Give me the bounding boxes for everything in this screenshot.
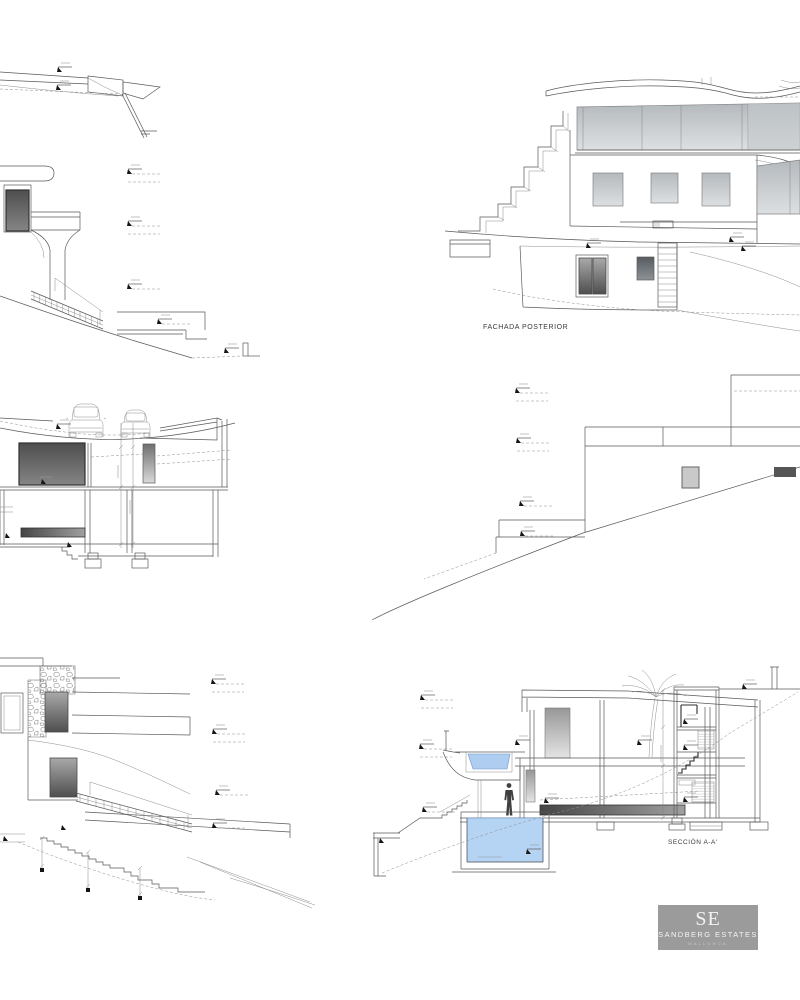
dark-counter [540, 805, 685, 815]
level-marker [127, 280, 160, 289]
drawing-entry-elevation-fragment [0, 55, 260, 370]
logo-company-name: SANDBERG ESTATES [658, 930, 758, 939]
level-marker [127, 217, 160, 234]
drawing-garage-section [0, 385, 240, 575]
dark-room [19, 443, 85, 485]
level-marker [729, 233, 744, 242]
dark-band [21, 528, 85, 537]
main-pool [452, 812, 556, 872]
window [702, 173, 730, 206]
level-marker [515, 736, 530, 745]
caption-fachada-posterior: FACHADA POSTERIOR [483, 324, 568, 331]
glass-curtain-wall [575, 103, 800, 153]
level-marker [515, 384, 548, 401]
drawing-fachada-posterior [440, 60, 800, 345]
level-marker [127, 165, 160, 182]
roof-blade [140, 418, 217, 440]
glass-section-band [143, 444, 155, 483]
small-stairs [62, 547, 78, 559]
level-marker [516, 434, 549, 451]
level-marker [519, 497, 552, 506]
upper-terrace-right [719, 667, 800, 689]
car-icon [121, 410, 150, 437]
lower-level [445, 231, 800, 331]
upper-floor [530, 700, 760, 822]
human-figure [507, 783, 512, 788]
footing [85, 553, 148, 568]
pool-water [467, 818, 543, 862]
dark-doorway [6, 190, 29, 231]
deck-line [0, 423, 235, 439]
level-marker [157, 315, 190, 324]
stone-cladding [28, 680, 46, 737]
dark-opening [774, 467, 796, 477]
dark-window [45, 692, 68, 732]
palm-tree-icon [622, 670, 686, 757]
pool-water [468, 754, 510, 769]
level-marker [224, 344, 239, 353]
sandberg-estates-logo: SE SANDBERG ESTATES MALLORCA [658, 905, 758, 950]
level-marker [683, 741, 698, 750]
drawing-lateral-elevation-stairs [0, 650, 320, 920]
level-marker [419, 740, 452, 757]
level-marker [520, 527, 553, 536]
window [651, 173, 678, 203]
terrain-dashed [382, 692, 798, 873]
level-marker [420, 691, 453, 708]
level-marker [57, 63, 72, 72]
level-marker [56, 420, 71, 429]
level-marker [544, 794, 559, 803]
glass-panel [545, 708, 570, 758]
terrain-line [0, 296, 192, 358]
staircase [31, 278, 103, 329]
curved-roof [546, 77, 800, 98]
drawing-seccion-aa [370, 655, 800, 895]
drawing-side-elevation [370, 370, 800, 630]
level-marker [211, 675, 244, 692]
drawing-sheet: FACHADA POSTERIOR SECCIÓN A-A' SE SANDBE… [0, 0, 800, 1000]
terrain-slope [372, 467, 800, 620]
deck-band [85, 812, 290, 838]
level-marker [422, 803, 455, 812]
terraced-steps [40, 838, 205, 892]
logo-subtitle: MALLORCA [688, 941, 728, 946]
level-marker [212, 725, 245, 742]
small-window [682, 467, 699, 488]
logo-initials: SE [695, 910, 720, 928]
caption-seccion-aa: SECCIÓN A-A' [668, 839, 718, 846]
white-window [1, 693, 23, 733]
dark-window [637, 257, 654, 280]
lower-floor [460, 766, 760, 822]
level-marker [742, 680, 757, 689]
grand-staircase [76, 782, 192, 832]
left-stairs-retaining [373, 795, 470, 876]
stepped-terrain-profile [458, 111, 570, 233]
stair-louver-block [658, 243, 677, 307]
level-marker [215, 786, 248, 795]
entry-structure [0, 165, 260, 358]
level-marker [683, 715, 698, 724]
dark-door [50, 758, 77, 797]
roof-fragment [0, 63, 160, 138]
terrain-dashed [18, 842, 215, 900]
car-icon [66, 404, 106, 437]
footings [597, 818, 768, 830]
window [593, 173, 623, 206]
glass-block [757, 160, 800, 214]
